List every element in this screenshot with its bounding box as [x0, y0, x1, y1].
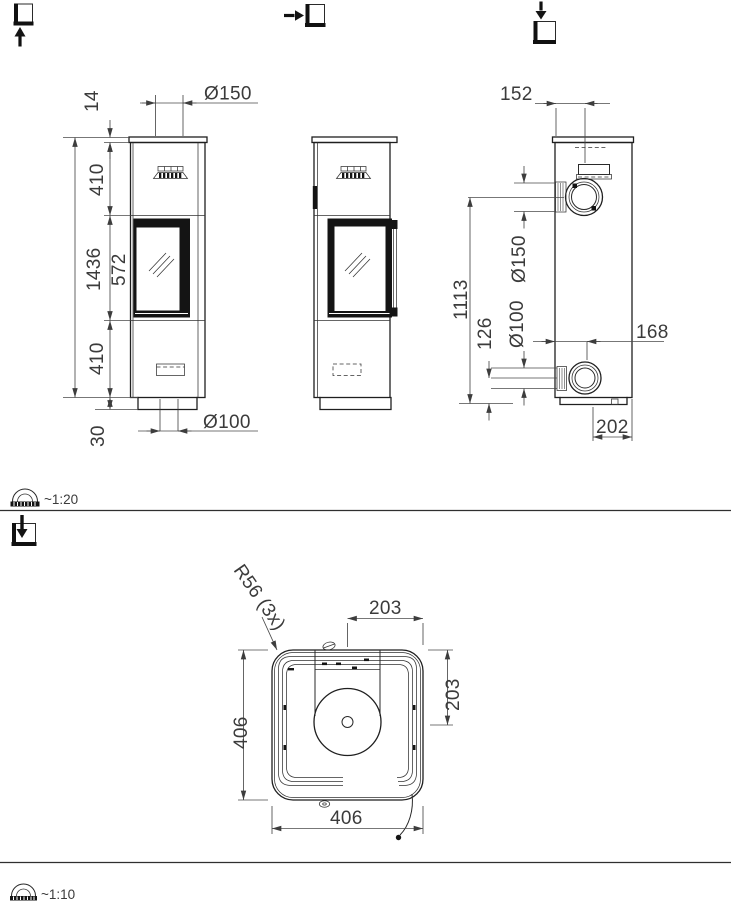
dim-flue-diameter: Ø150 [140, 84, 258, 137]
dim-corner-radius: R56 (3x) [229, 561, 289, 650]
svg-text:~1:10: ~1:10 [41, 887, 75, 902]
door-glass-frame [134, 219, 191, 318]
svg-text:202: 202 [596, 417, 629, 438]
dim-flue-diameter: Ø150 [509, 166, 556, 283]
top-cap [129, 137, 207, 143]
ash-drawer-handle [157, 364, 185, 376]
svg-text:406: 406 [330, 808, 363, 829]
svg-text:30: 30 [88, 425, 109, 447]
plinth [320, 398, 391, 410]
technical-drawing-page: Ø150 1436 14 410 572 410 30 [0, 0, 731, 904]
svg-text:R56 (3x): R56 (3x) [229, 561, 289, 635]
dim-center-to-edge-depth: 203 [428, 650, 464, 725]
dim-inlet-diameter: Ø100 [491, 300, 557, 405]
svg-text:203: 203 [443, 678, 464, 711]
dim-center-to-edge-width: 203 [348, 598, 424, 647]
glass-reflection [345, 253, 370, 277]
door-latch [319, 801, 329, 807]
plinth [560, 398, 627, 405]
svg-text:1436: 1436 [84, 248, 105, 291]
glass-reflection [149, 253, 174, 277]
rear-view: 152 1113 Ø150 Ø100 126 [451, 84, 669, 441]
dim-base-depth: 202 [593, 399, 632, 441]
hidden-handle [333, 364, 361, 376]
body-outline [131, 143, 206, 398]
svg-text:Ø100: Ø100 [507, 300, 528, 348]
view-from-top-icon-section [12, 515, 37, 546]
plinth [138, 398, 197, 410]
view-from-left-icon [284, 4, 326, 27]
dim-inlet-offset: 168 [533, 322, 669, 360]
air-inlet [569, 362, 601, 394]
scale-note-upper: ~1:20 [11, 489, 79, 507]
svg-text:Ø150: Ø150 [204, 84, 252, 105]
stove-dimension-drawing: Ø150 1436 14 410 572 410 30 [0, 0, 731, 904]
svg-text:410: 410 [87, 342, 108, 375]
flue-circle [314, 689, 381, 756]
view-from-front-icon [14, 4, 34, 47]
svg-text:203: 203 [369, 598, 402, 619]
svg-text:Ø100: Ø100 [203, 412, 251, 433]
air-grille [154, 167, 188, 179]
svg-text:14: 14 [82, 90, 103, 112]
svg-text:Ø150: Ø150 [509, 235, 530, 283]
side-view [312, 137, 398, 410]
air-grille [337, 167, 371, 179]
top-view: R56 (3x) 203 203 406 406 [229, 561, 464, 840]
front-view: Ø150 1436 14 410 572 410 30 [63, 84, 258, 448]
scale-note-lower: ~1:10 [10, 884, 75, 902]
hinge-block-top [390, 220, 398, 229]
body-outline [314, 143, 390, 398]
protractor-scale-icon [11, 489, 40, 507]
svg-text:~1:20: ~1:20 [44, 492, 78, 507]
svg-text:406: 406 [231, 716, 252, 749]
top-cap [553, 137, 634, 143]
svg-text:410: 410 [87, 163, 108, 196]
svg-text:152: 152 [500, 84, 533, 105]
protractor-scale-icon [10, 884, 37, 900]
hinge-block-bottom [390, 308, 398, 317]
svg-text:1113: 1113 [451, 279, 472, 320]
flue-center-hole [342, 717, 353, 728]
dim-overall-depth: 406 [231, 650, 268, 800]
dim-overall-width: 406 [272, 806, 423, 834]
dim-bottom-inlet: Ø100 [138, 399, 258, 433]
svg-text:572: 572 [109, 253, 130, 286]
door-glass-frame [328, 219, 393, 318]
flue-collar [579, 165, 610, 175]
svg-text:168: 168 [636, 322, 669, 343]
svg-text:126: 126 [475, 317, 496, 350]
view-from-top-icon [533, 2, 556, 44]
top-cap [312, 137, 397, 143]
dim-inlet-height: 126 [475, 317, 496, 420]
